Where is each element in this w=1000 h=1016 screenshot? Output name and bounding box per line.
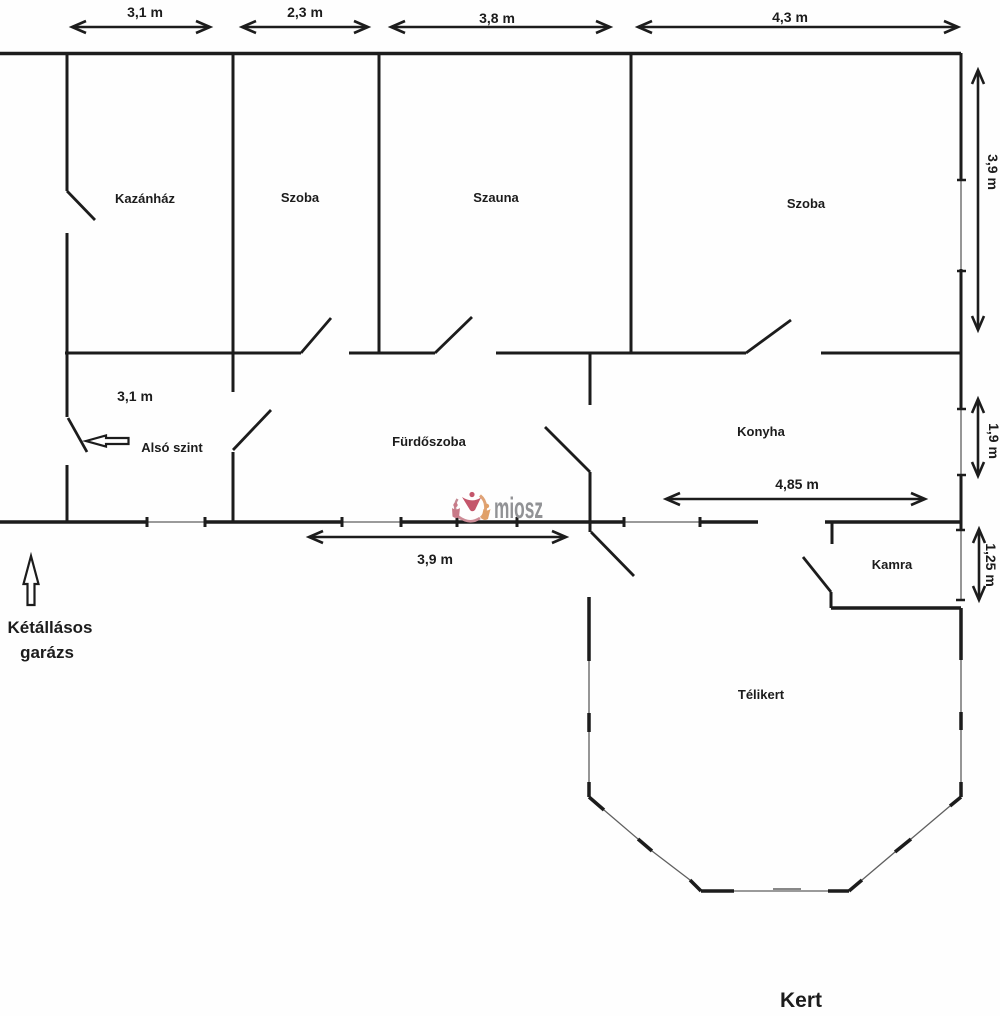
svg-text:Télikert: Télikert (738, 687, 785, 702)
svg-text:3,8 m: 3,8 m (479, 10, 515, 26)
svg-text:2,3 m: 2,3 m (287, 4, 323, 20)
svg-text:3,1 m: 3,1 m (127, 4, 163, 20)
svg-text:Kert: Kert (780, 989, 822, 1012)
svg-text:4,3 m: 4,3 m (772, 9, 808, 25)
svg-text:Kétállásos: Kétállásos (7, 618, 92, 637)
svg-text:Kazánház: Kazánház (115, 191, 175, 206)
svg-text:Szauna: Szauna (473, 190, 519, 205)
svg-text:Kamra: Kamra (872, 557, 913, 572)
svg-text:4,85 m: 4,85 m (775, 476, 819, 492)
svg-text:garázs: garázs (20, 643, 74, 662)
svg-text:3,1 m: 3,1 m (117, 388, 153, 404)
svg-text:Szoba: Szoba (281, 190, 320, 205)
svg-text:3,9 m: 3,9 m (417, 551, 453, 567)
svg-text:Fürdőszoba: Fürdőszoba (392, 434, 466, 449)
svg-text:Konyha: Konyha (737, 424, 785, 439)
svg-text:Szoba: Szoba (787, 196, 826, 211)
svg-text:1,25 m: 1,25 m (983, 543, 999, 587)
svg-text:3,9 m: 3,9 m (985, 154, 1000, 190)
svg-text:miosz: miosz (494, 492, 543, 525)
svg-text:1,9 m: 1,9 m (986, 423, 1000, 459)
svg-text:Alsó szint: Alsó szint (141, 440, 203, 455)
